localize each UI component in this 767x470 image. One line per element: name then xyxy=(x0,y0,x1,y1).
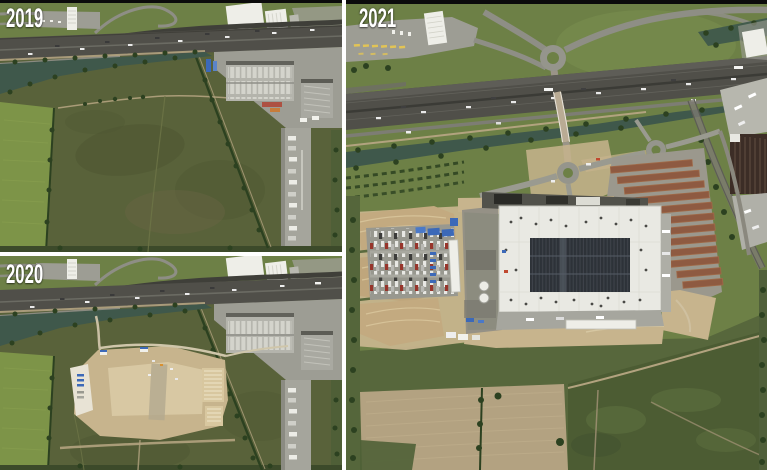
frame-strip-top-2021 xyxy=(346,0,767,4)
year-label-2020: 2020 xyxy=(6,261,43,288)
satellite-image-2019 xyxy=(0,0,342,252)
satellite-panel-2020: 2020 xyxy=(0,256,342,470)
satellite-comparison: 2019 xyxy=(0,0,767,470)
satellite-image-2020 xyxy=(0,256,342,470)
satellite-panel-2019: 2019 xyxy=(0,0,342,252)
parking-lot-2021 xyxy=(366,224,460,300)
frame-strip-top-2019 xyxy=(0,0,342,3)
year-label-2019: 2019 xyxy=(6,5,43,32)
satellite-image-2021 xyxy=(346,0,767,470)
solar-array xyxy=(530,238,630,292)
year-label-2021: 2021 xyxy=(359,5,396,32)
satellite-panel-2021: 2021 xyxy=(346,0,767,470)
warehouse-2021 xyxy=(482,192,671,330)
